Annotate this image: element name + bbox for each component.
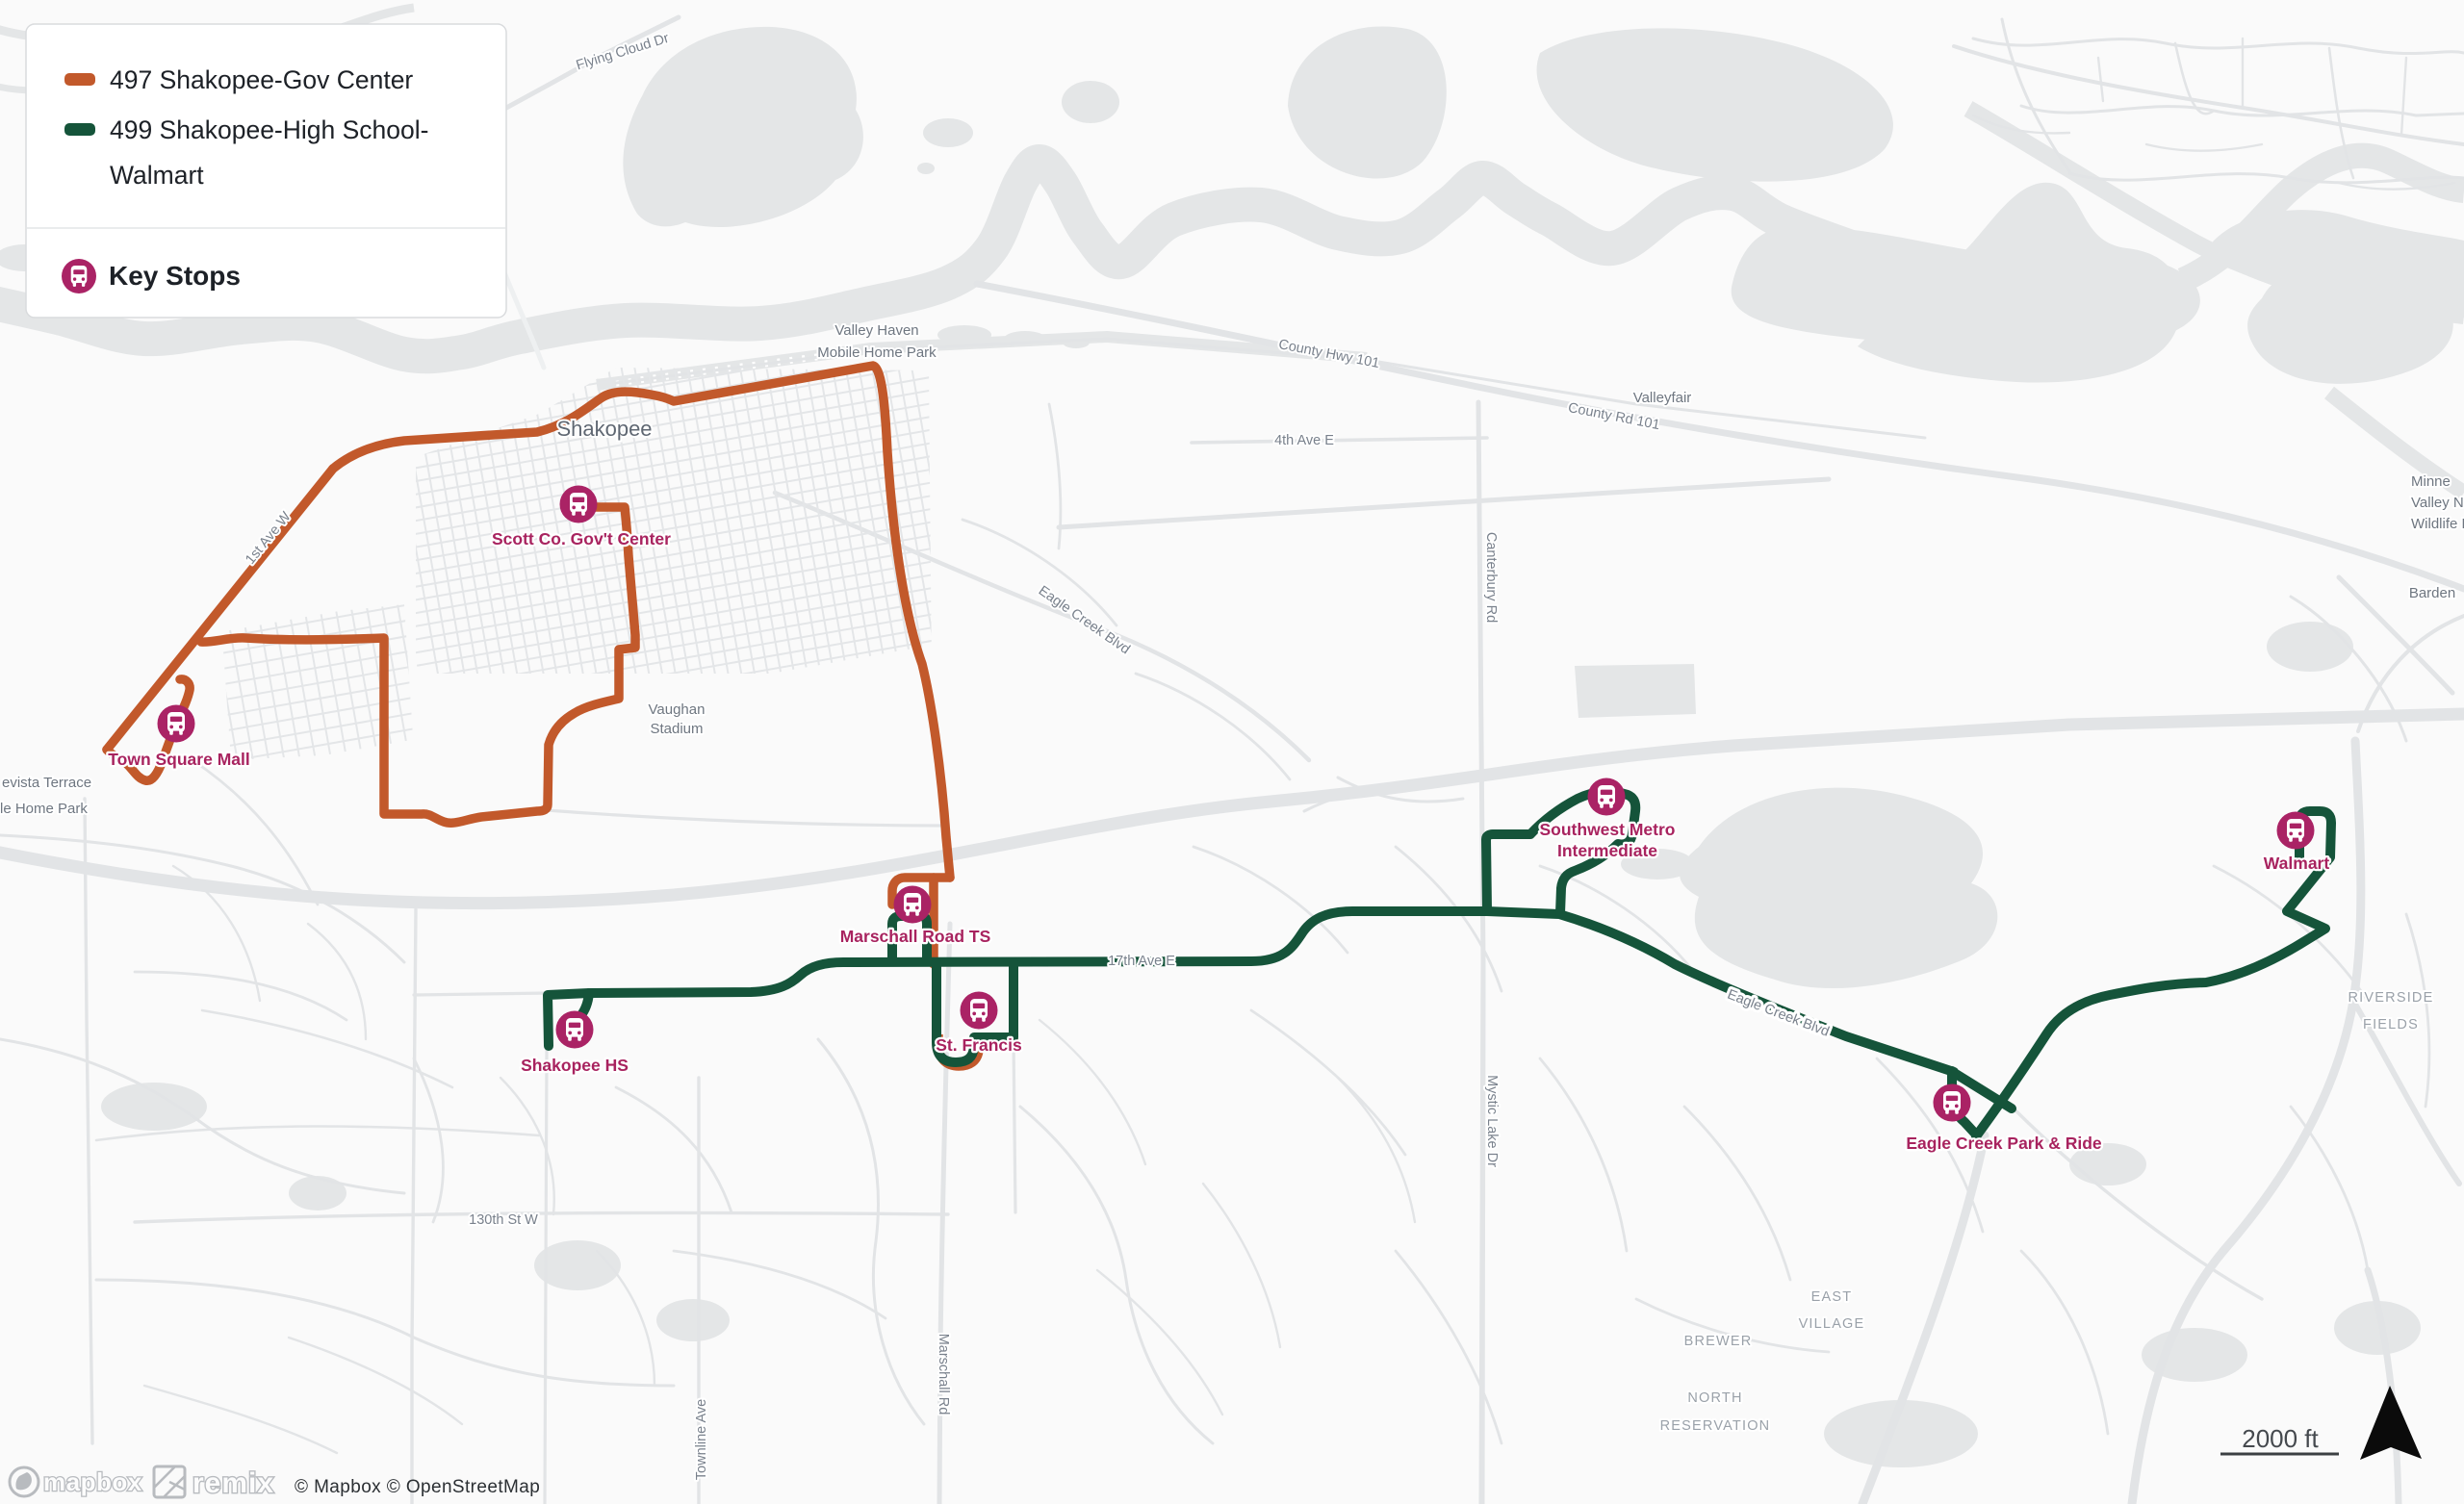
svg-text:evista Terrace: evista Terrace bbox=[2, 775, 91, 791]
svg-text:Minne: Minne bbox=[2411, 473, 2451, 490]
svg-text:Mystic Lake Dr: Mystic Lake Dr bbox=[1484, 1075, 1500, 1167]
svg-text:mapbox: mapbox bbox=[43, 1467, 142, 1496]
svg-text:497 Shakopee-Gov Center: 497 Shakopee-Gov Center bbox=[110, 65, 413, 94]
svg-text:Wildlife R: Wildlife R bbox=[2411, 516, 2464, 532]
svg-text:Intermediate: Intermediate bbox=[1557, 841, 1657, 860]
svg-text:Scott Co. Gov't Center: Scott Co. Gov't Center bbox=[492, 529, 671, 548]
svg-text:Valley Haven: Valley Haven bbox=[834, 322, 918, 339]
svg-text:2000 ft: 2000 ft bbox=[2242, 1424, 2319, 1453]
svg-text:Southwest Metro: Southwest Metro bbox=[1540, 820, 1676, 839]
svg-text:remix: remix bbox=[192, 1467, 274, 1499]
svg-text:Stadium: Stadium bbox=[650, 721, 703, 737]
svg-text:Townline Ave: Townline Ave bbox=[694, 1399, 709, 1480]
svg-text:St. Francis: St. Francis bbox=[936, 1035, 1022, 1055]
svg-text:© Mapbox © OpenStreetMap: © Mapbox © OpenStreetMap bbox=[295, 1477, 540, 1497]
svg-text:499 Shakopee-High School-: 499 Shakopee-High School- bbox=[110, 115, 428, 144]
svg-text:Barden: Barden bbox=[2409, 585, 2455, 601]
svg-text:Valley N: Valley N bbox=[2411, 495, 2464, 511]
svg-text:RIVERSIDE: RIVERSIDE bbox=[2348, 990, 2434, 1006]
svg-text:BREWER: BREWER bbox=[1684, 1334, 1753, 1349]
svg-text:Walmart: Walmart bbox=[110, 161, 204, 190]
svg-text:Key Stops: Key Stops bbox=[109, 261, 241, 291]
svg-text:Vaughan: Vaughan bbox=[649, 701, 706, 718]
svg-text:130th St W: 130th St W bbox=[469, 1212, 538, 1228]
svg-text:Town Square Mall: Town Square Mall bbox=[108, 750, 249, 769]
svg-text:Marschall Rd: Marschall Rd bbox=[936, 1334, 951, 1415]
svg-text:NORTH: NORTH bbox=[1687, 1390, 1742, 1406]
svg-text:4th Ave E: 4th Ave E bbox=[1274, 433, 1334, 448]
svg-text:Valleyfair: Valleyfair bbox=[1633, 390, 1692, 406]
svg-text:Walmart: Walmart bbox=[2264, 854, 2330, 873]
svg-text:RESERVATION: RESERVATION bbox=[1660, 1418, 1771, 1434]
svg-text:Canterbury Rd: Canterbury Rd bbox=[1483, 532, 1499, 623]
svg-text:FIELDS: FIELDS bbox=[2363, 1017, 2419, 1032]
svg-text:EAST: EAST bbox=[1811, 1289, 1853, 1305]
svg-text:le Home Park: le Home Park bbox=[0, 801, 88, 817]
svg-text:Eagle Creek Park & Ride: Eagle Creek Park & Ride bbox=[1906, 1134, 2102, 1153]
svg-text:17th Ave E: 17th Ave E bbox=[1108, 954, 1175, 969]
svg-text:Mobile Home Park: Mobile Home Park bbox=[817, 344, 937, 361]
svg-text:Marschall Road TS: Marschall Road TS bbox=[840, 927, 991, 946]
svg-text:Shakopee: Shakopee bbox=[556, 417, 652, 441]
svg-text:VILLAGE: VILLAGE bbox=[1799, 1316, 1865, 1332]
svg-text:Shakopee HS: Shakopee HS bbox=[521, 1056, 629, 1075]
